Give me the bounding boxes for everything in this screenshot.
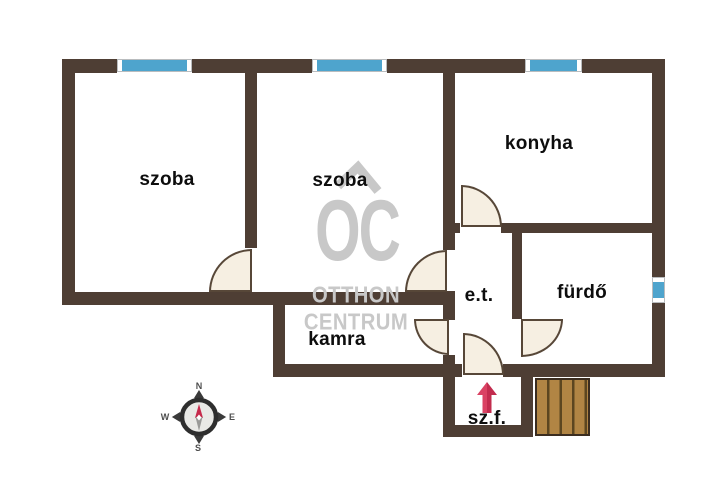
- wall-top-3: [387, 59, 525, 73]
- room-label-kamra: kamra: [308, 329, 366, 351]
- wall-et-furdo-divider: [512, 233, 522, 319]
- compass-label-w: W: [161, 412, 170, 422]
- room-label-konyha: konyha: [505, 133, 573, 155]
- window-szoba-left: [117, 59, 192, 72]
- wall-left: [62, 59, 75, 305]
- door-szoba-middle-et: [405, 250, 447, 292]
- window-glass: [530, 60, 577, 71]
- floor-plan: OC OTTHON CENTRUM szoba szoba konyha e.t…: [0, 0, 711, 500]
- room-label-eloter: e.t.: [465, 285, 494, 307]
- window-furdo: [652, 277, 665, 303]
- watermark-logo: OC: [315, 199, 399, 263]
- wall-bottom-right: [503, 364, 665, 377]
- wall-center-vertical-upper: [443, 59, 455, 250]
- door-konyha: [461, 185, 502, 227]
- room-label-szoba-middle: szoba: [312, 170, 367, 192]
- door-szoba-left: [209, 249, 252, 292]
- wall-bottom-left: [273, 364, 462, 377]
- compass-label-s: S: [195, 443, 201, 453]
- wall-szf-right: [521, 377, 533, 437]
- door-kamra: [414, 319, 449, 355]
- room-label-furdo: fürdő: [557, 282, 607, 304]
- window-glass: [317, 60, 382, 71]
- entrance-arrow-icon: [477, 382, 497, 413]
- compass-label-n: N: [196, 381, 203, 391]
- compass-label-e: E: [229, 412, 235, 422]
- wall-konyha-divider-stub: [455, 223, 460, 233]
- stairs: [535, 378, 590, 436]
- window-glass: [653, 282, 664, 298]
- door-furdo: [521, 319, 563, 357]
- compass-rose: [167, 385, 231, 449]
- door-szelfogo: [463, 333, 504, 375]
- room-label-szoba-left: szoba: [139, 169, 194, 191]
- watermark-line1: OTTHON: [312, 282, 400, 309]
- window-konyha: [525, 59, 582, 72]
- wall-center-vertical-mid: [443, 291, 455, 320]
- wall-kamra-left: [273, 292, 285, 377]
- wall-konyha-divider: [501, 223, 664, 233]
- window-glass: [122, 60, 187, 71]
- wall-divider-szoba: [245, 59, 257, 248]
- window-szoba-middle: [312, 59, 387, 72]
- wall-right-upper: [652, 59, 665, 278]
